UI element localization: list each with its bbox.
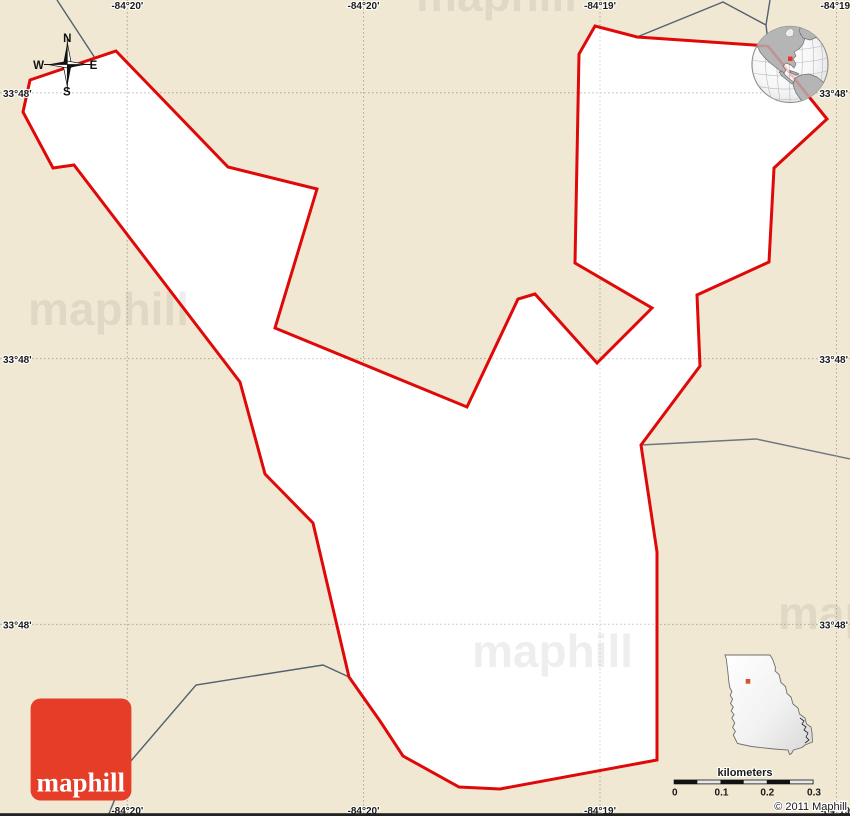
svg-text:maphill: maphill xyxy=(416,0,577,21)
svg-text:0.2: 0.2 xyxy=(760,788,774,799)
svg-text:© 2011 Maphill: © 2011 Maphill xyxy=(774,801,847,813)
svg-text:33°48': 33°48' xyxy=(819,89,848,100)
svg-text:-84°20': -84°20' xyxy=(348,1,380,12)
svg-text:W: W xyxy=(33,60,44,72)
svg-text:0.1: 0.1 xyxy=(715,788,729,799)
svg-text:33°48': 33°48' xyxy=(819,621,848,632)
svg-text:-84°20': -84°20' xyxy=(111,1,143,12)
svg-text:33°48': 33°48' xyxy=(3,621,32,632)
svg-text:33°48': 33°48' xyxy=(3,355,32,366)
svg-text:0: 0 xyxy=(672,788,678,799)
svg-text:-84°19': -84°19' xyxy=(821,1,850,12)
svg-text:-84°19': -84°19' xyxy=(584,1,616,12)
svg-text:E: E xyxy=(90,60,98,72)
svg-text:S: S xyxy=(63,87,71,99)
svg-text:maphill: maphill xyxy=(28,283,189,335)
svg-text:33°48': 33°48' xyxy=(819,355,848,366)
svg-text:maphill: maphill xyxy=(472,625,633,677)
svg-text:maphill: maphill xyxy=(37,768,126,798)
svg-text:0.3: 0.3 xyxy=(807,788,821,799)
svg-text:N: N xyxy=(63,33,71,45)
svg-text:kilometers: kilometers xyxy=(717,767,772,779)
svg-text:33°48': 33°48' xyxy=(3,89,32,100)
